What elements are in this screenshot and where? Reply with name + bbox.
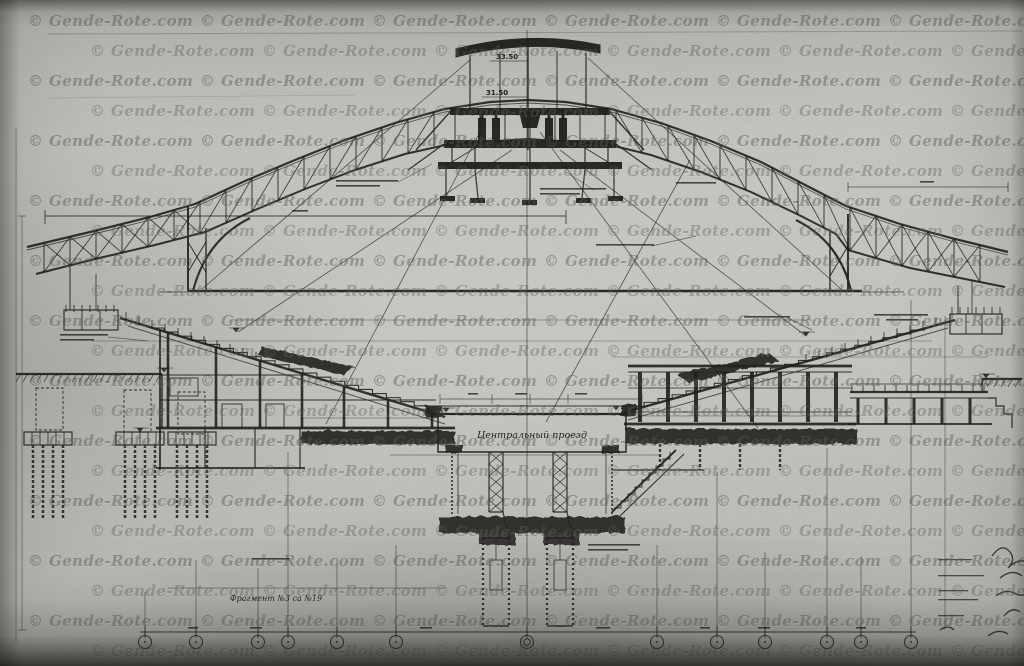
elevation-label-top: 33.50 (496, 53, 518, 61)
dark-masses (256, 346, 856, 544)
central-hall-label: Центральный проезд (477, 430, 587, 441)
fragment-note: Фрагмент №3 са №19 (230, 594, 322, 603)
apex-tower (408, 38, 652, 205)
photographed-blueprint: 33.50 31.50 Центральный проезд Фрагмент … (0, 0, 1024, 666)
arch-truss (27, 100, 1008, 292)
handwritten-notes (938, 548, 1024, 636)
truss-webbing (44, 110, 980, 282)
axis-bubbles (139, 626, 918, 649)
blueprint-drawing: 33.50 31.50 Центральный проезд Фрагмент … (0, 0, 1024, 666)
elevation-label-mid: 31.50 (486, 89, 508, 97)
substructure-buildings (16, 330, 1022, 520)
